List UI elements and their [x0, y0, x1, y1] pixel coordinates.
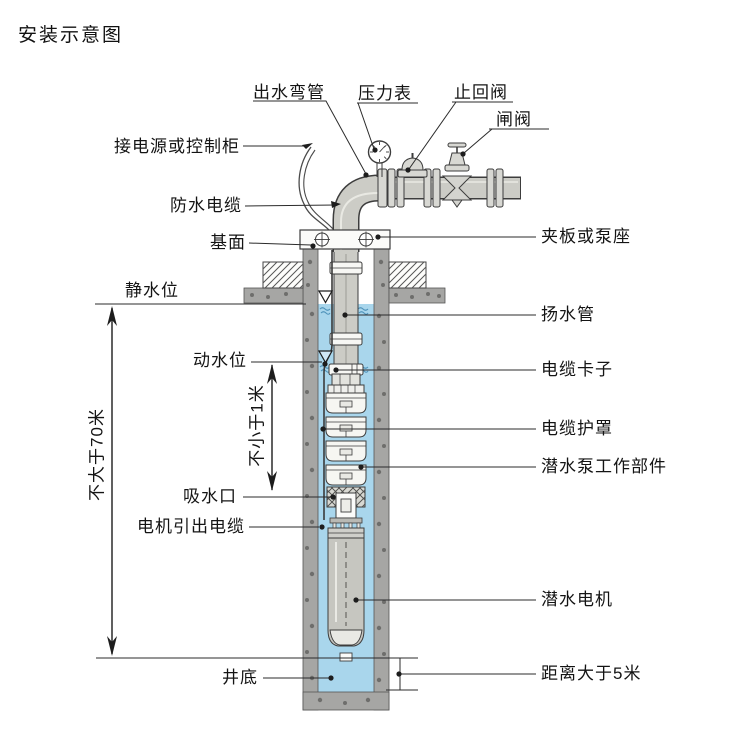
diagram-graphics [0, 0, 750, 745]
installation-diagram: 安装示意图 出水弯管 压力表 止回阀 闸阀 接电源或控制柜 防水电缆 基面 静水… [0, 0, 750, 745]
label-distance-over-5m: 距离大于5米 [541, 664, 641, 684]
label-gate-valve: 闸阀 [496, 110, 532, 130]
label-riser-pipe: 扬水管 [541, 305, 595, 325]
label-base-surface: 基面 [210, 233, 246, 253]
label-min-1m: 不小于1米 [243, 376, 268, 476]
label-dynamic-water-level: 动水位 [193, 351, 247, 371]
dimension-70m [107, 306, 117, 656]
label-cable-clamp: 电缆卡子 [541, 360, 613, 380]
label-well-bottom: 井底 [222, 668, 258, 688]
label-pressure-gauge: 压力表 [358, 84, 412, 104]
motor-coupling [328, 518, 364, 538]
label-cable-guard: 电缆护罩 [541, 419, 613, 439]
label-waterproof-cable: 防水电缆 [170, 196, 242, 216]
label-pump-working-parts: 潜水泵工作部件 [541, 457, 667, 477]
label-suction-inlet: 吸水口 [183, 487, 237, 507]
label-static-water-level: 静水位 [125, 281, 179, 301]
check-valve-body [398, 153, 427, 177]
surface-pipework [299, 141, 521, 252]
gate-valve-body [443, 143, 471, 207]
label-outlet-elbow: 出水弯管 [253, 83, 325, 103]
label-clamp-or-pump-seat: 夹板或泵座 [541, 227, 631, 247]
label-check-valve: 止回阀 [454, 83, 508, 103]
label-power-or-control-cabinet: 接电源或控制柜 [114, 137, 240, 157]
page-title: 安装示意图 [18, 20, 123, 47]
label-motor-lead-cable: 电机引出电缆 [137, 517, 245, 537]
label-max-depth-70m: 不大于70米 [83, 395, 108, 515]
label-submersible-motor: 潜水电机 [541, 590, 613, 610]
dimension-1m [267, 364, 277, 491]
